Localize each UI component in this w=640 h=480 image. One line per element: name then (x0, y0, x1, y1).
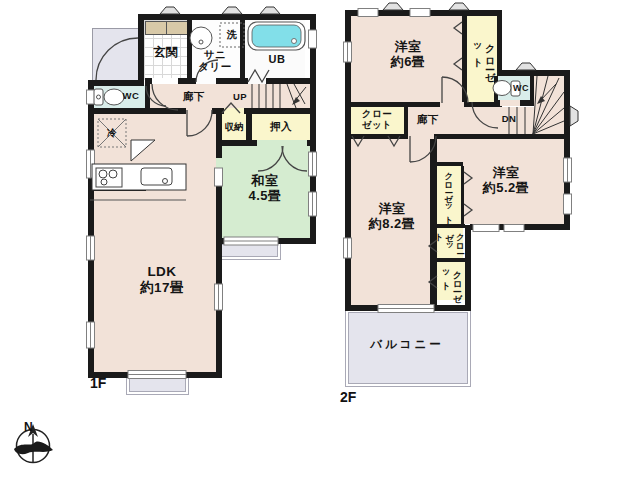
room-label-balcony: バルコニー (370, 338, 444, 352)
closet-label: クローゼット (471, 37, 496, 81)
room-label-ldk: LDK 約17畳 (140, 264, 184, 296)
room-label-sanitary: サニ タリー (198, 48, 232, 73)
room-label-oshiire: 押入 (270, 120, 292, 132)
label-stairs-up: UP (233, 91, 247, 102)
stairs-up-icon (252, 84, 306, 108)
toilet-icon (94, 89, 124, 105)
room-label-washitsu: 和室 4.5畳 (248, 173, 281, 204)
kitchen-counter-icon (90, 164, 186, 200)
floor1-label: 1F (90, 375, 106, 391)
room-label-entrance: 玄関 (154, 45, 179, 59)
room-label-bedroom6: 洋室 約6畳 (391, 39, 426, 70)
sink-basin-icon (190, 27, 212, 49)
closet-label: クローゼット (434, 227, 466, 259)
floor2-label: 2F (340, 389, 356, 405)
room-label-wc-1f: WC (123, 90, 140, 101)
room-label-hallway-2f: 廊下 (417, 113, 439, 125)
room-label-unit-bath: UB (269, 53, 286, 66)
closet-label: クローゼット (444, 166, 455, 224)
compass-icon: N (14, 420, 53, 463)
floor-plan-canvas: N 玄関 サニ タリー 洗 UB WC 廊下 UP 収納 押入 和室 4.5畳 … (0, 0, 640, 480)
room-label-bedroom82: 洋室 約8.2畳 (369, 201, 416, 232)
compass-north-label: N (24, 420, 33, 434)
room-label-laundry: 洗 (227, 29, 238, 41)
corner-counter-icon (131, 140, 155, 161)
room-label-bedroom52: 洋室 約5.2畳 (483, 165, 530, 196)
closet-label: クローゼット (440, 264, 463, 300)
label-fridge: 冷 (107, 127, 117, 138)
closet-label: クロー ゼット (362, 108, 393, 130)
plan-symbols: N (0, 0, 640, 480)
room-label-wc-2f: WC (513, 83, 529, 94)
room-label-hallway-1f: 廊下 (183, 90, 205, 102)
label-stairs-down: DN (502, 113, 517, 124)
bathtub-icon (248, 22, 305, 50)
room-label-storage: 収納 (225, 121, 244, 132)
